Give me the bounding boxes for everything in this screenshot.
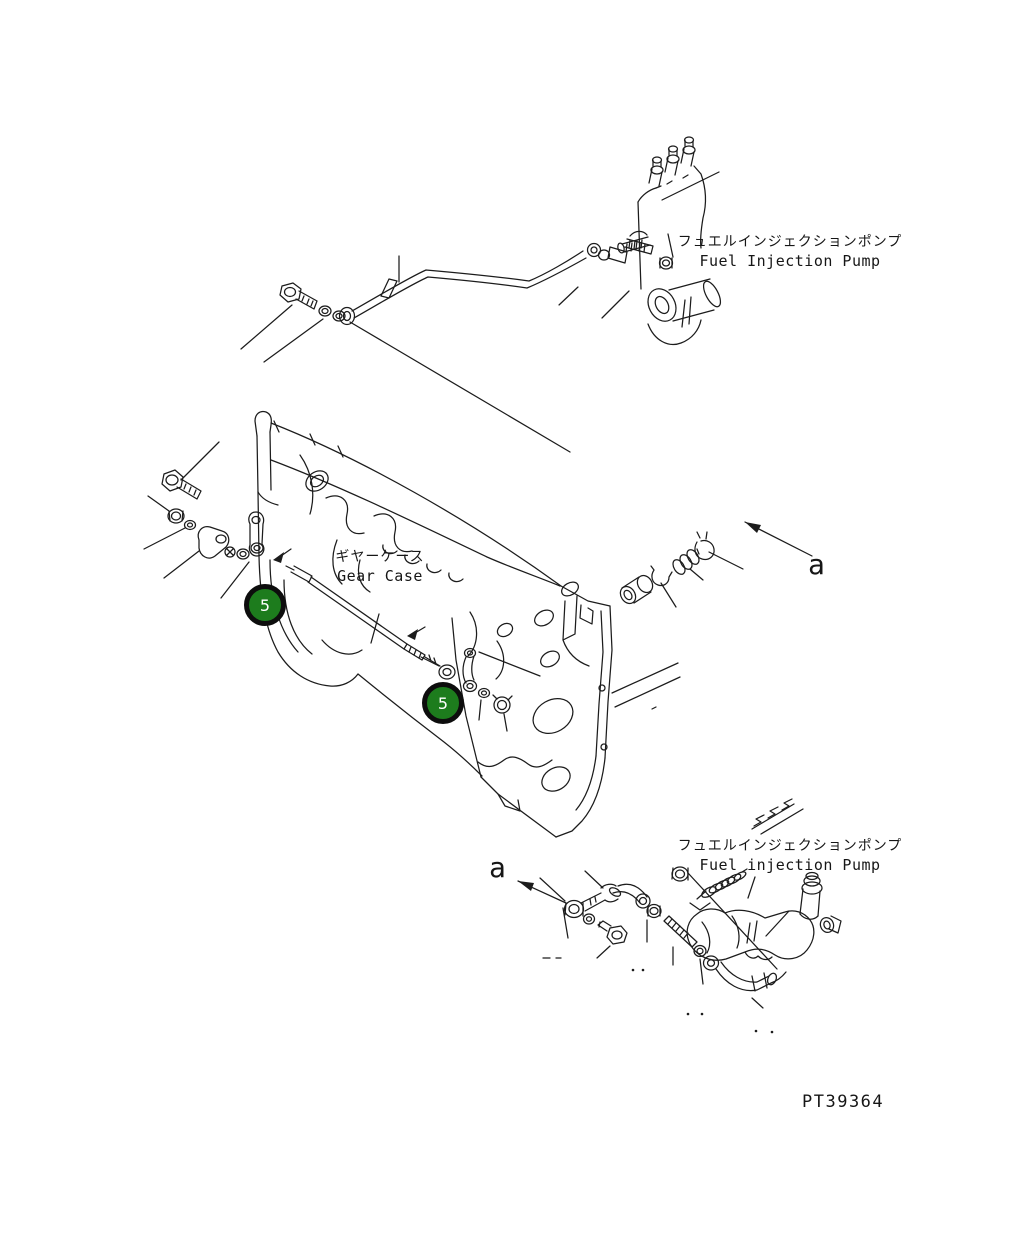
bottom-fuel-injection-pump-assembly (540, 799, 841, 1033)
bottom-pump-label-jp: フュエルインジェクションポンプ (640, 838, 940, 856)
callout-5-left[interactable]: 5 (244, 584, 286, 626)
bottom-pump-label-en: Fuel injection Pump (640, 856, 940, 875)
top-pump-label-en: Fuel Injection Pump (640, 252, 940, 271)
drawing-number: PT39364 (802, 1092, 884, 1112)
callout-5-right-number: 5 (438, 694, 448, 713)
view-arrow-label-top: a (808, 548, 825, 581)
gear-case-label-jp: ギヤーケース (305, 549, 455, 567)
parts-diagram-linework (0, 0, 1035, 1260)
callout-5-right[interactable]: 5 (422, 682, 464, 724)
view-arrow-top (745, 522, 812, 556)
gear-case-label: ギヤーケース Gear Case (305, 549, 455, 585)
bottom-pump-label: フュエルインジェクションポンプ Fuel injection Pump (640, 838, 940, 874)
top-pump-label-jp: フュエルインジェクションポンプ (640, 234, 940, 252)
view-arrow-label-bottom: a (489, 851, 506, 884)
gear-case-label-en: Gear Case (305, 567, 455, 586)
top-pump-label: フュエルインジェクションポンプ Fuel Injection Pump (640, 234, 940, 270)
top-fuel-pipe-assembly (241, 231, 653, 452)
gear-case (255, 411, 680, 837)
callout-5-left-number: 5 (260, 596, 270, 615)
parts-diagram-page: フュエルインジェクションポンプ Fuel Injection Pump ギヤーケ… (0, 0, 1035, 1260)
right-spring-set (617, 532, 743, 607)
left-bracket-parts (144, 442, 264, 598)
view-arrow-bottom (518, 881, 566, 903)
